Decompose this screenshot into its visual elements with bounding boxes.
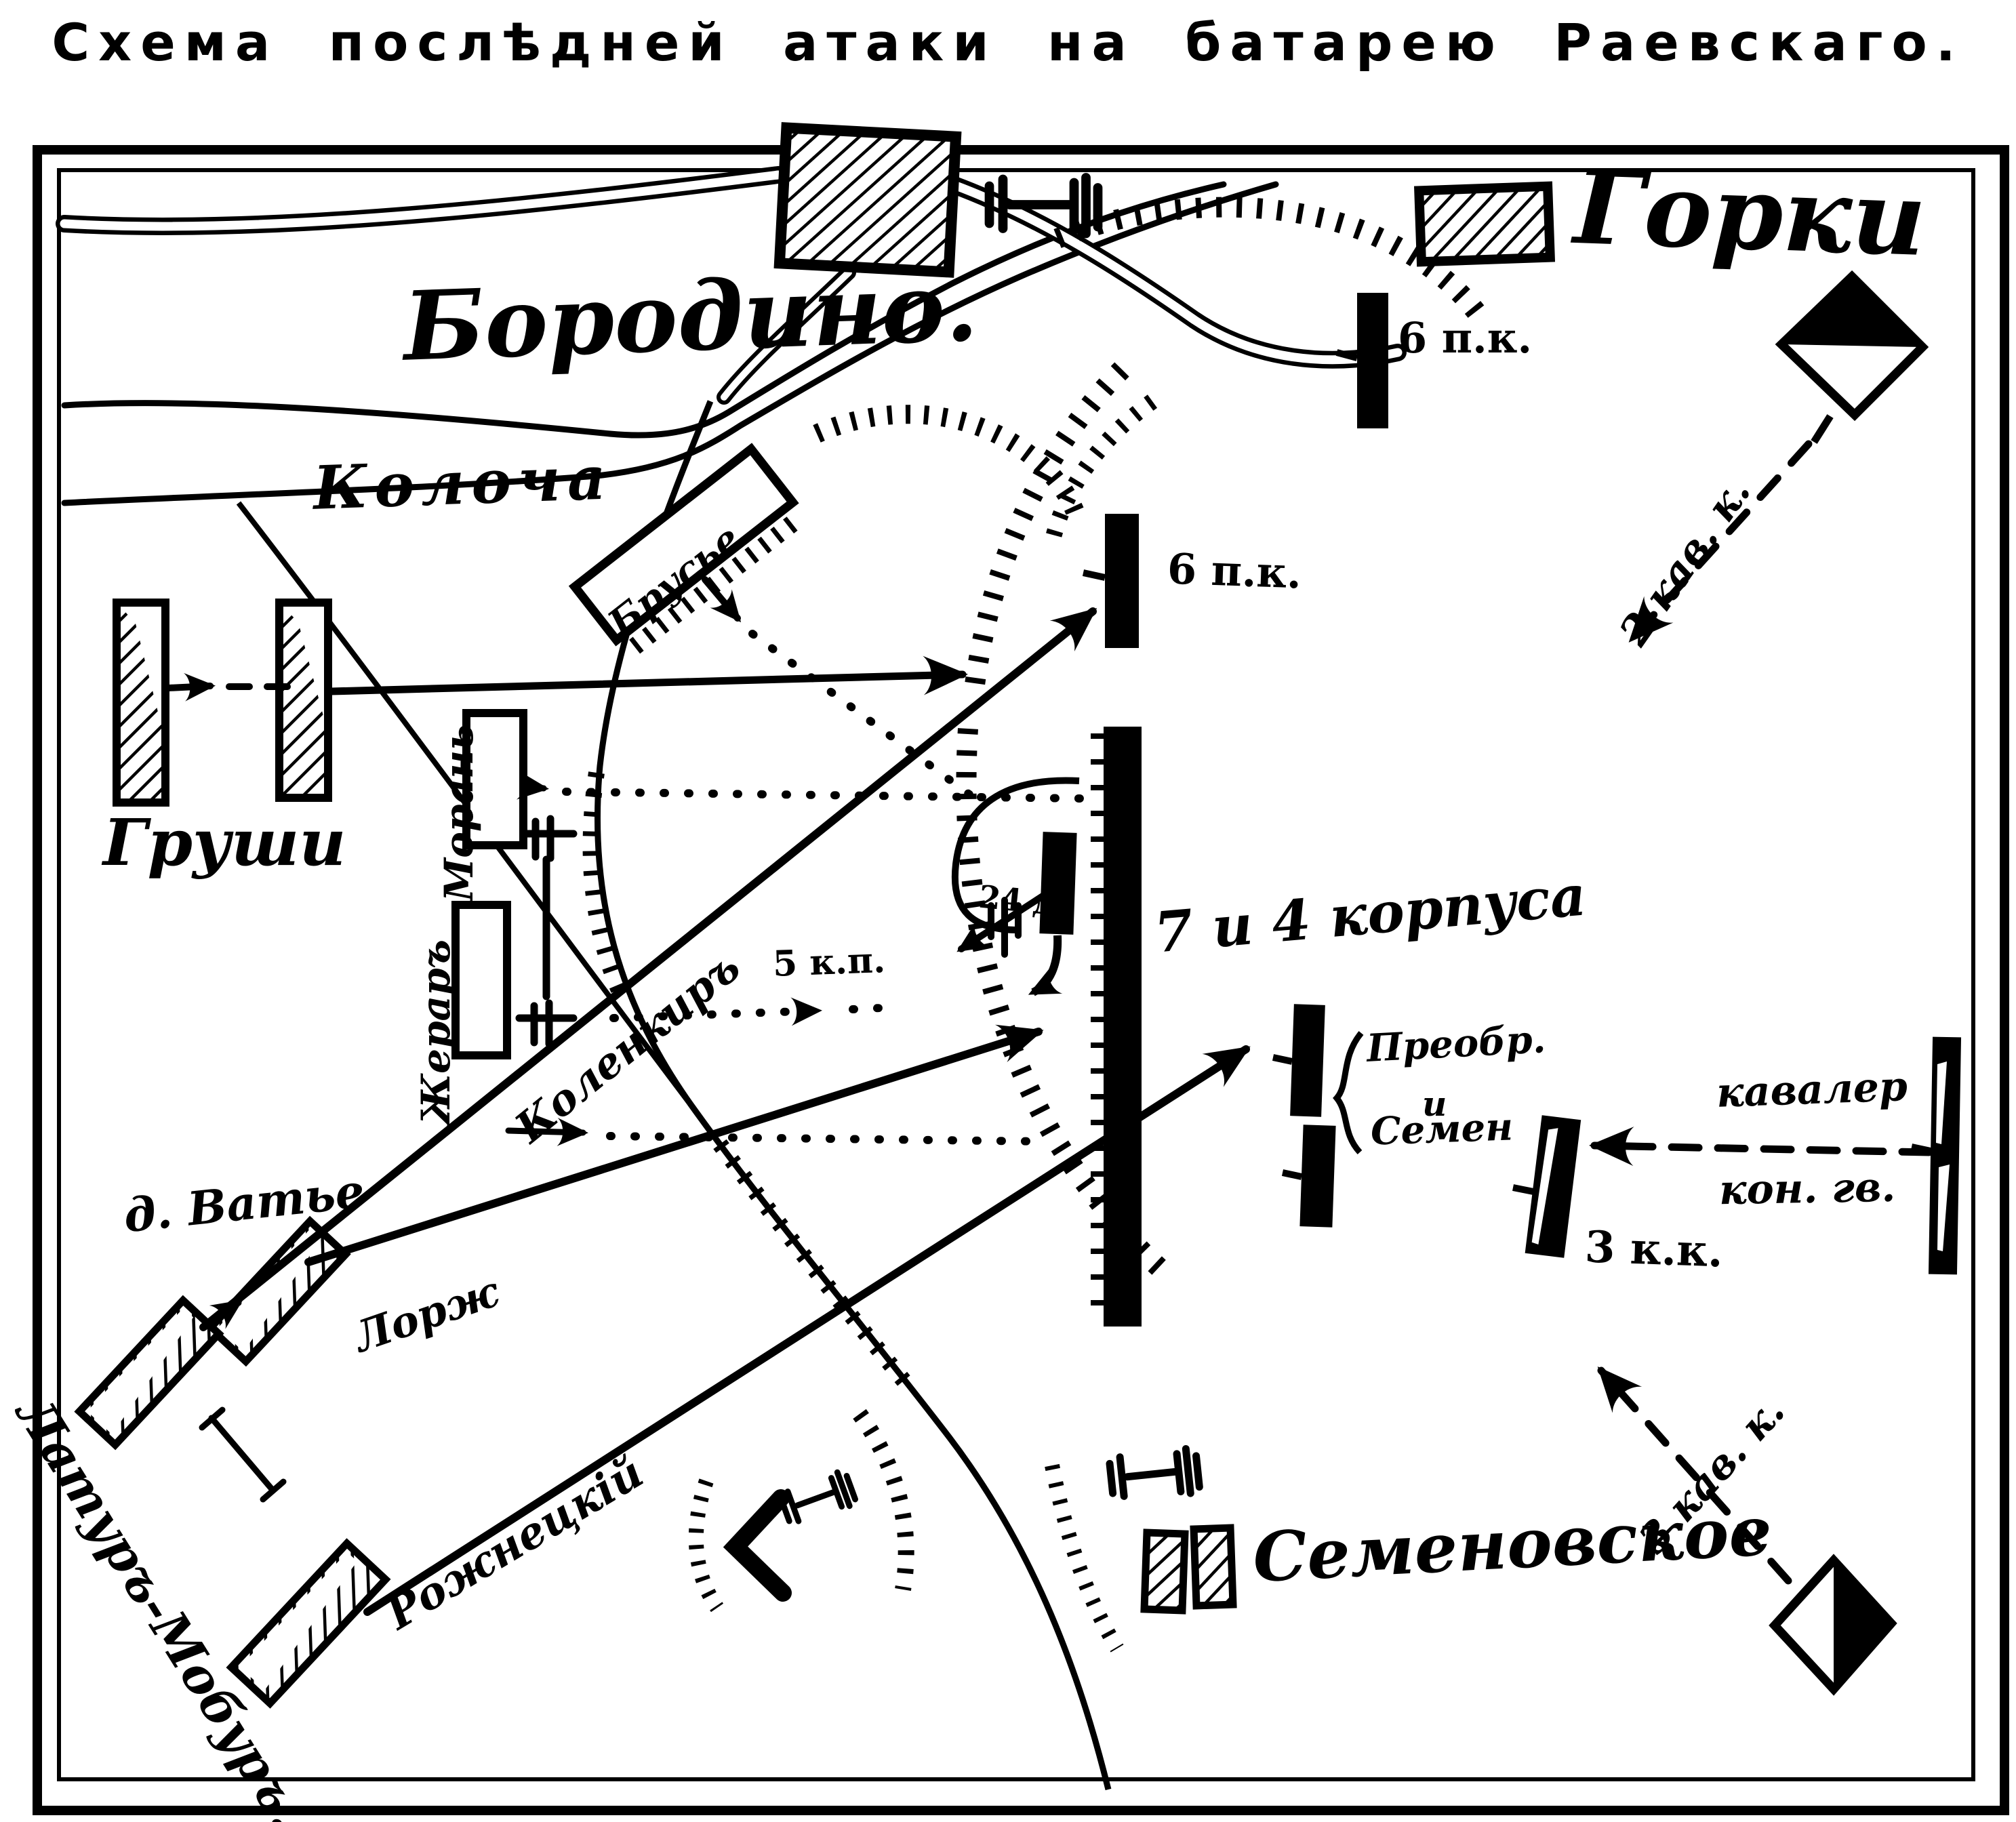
label-6pk-top: 6 п.к. <box>1398 317 1532 359</box>
label-5kp: 5 к.п. <box>772 943 886 982</box>
cavalry-diamond-2kav <box>1781 277 1922 442</box>
guard-bar-preobr <box>1273 1004 1325 1117</box>
cannon-icon-semenovskoe <box>1109 1448 1200 1501</box>
borodino-village-icon <box>780 128 956 272</box>
dots-broussier <box>752 634 969 794</box>
battery-icon-morand <box>519 819 573 1044</box>
arrow-grushi-short <box>168 686 210 688</box>
cannon-icon-fleche <box>780 1470 857 1527</box>
arrow-kongv <box>1594 1146 1929 1152</box>
label-24div: 24 д. <box>977 881 1066 921</box>
fleche-chevron-icon <box>735 1498 783 1593</box>
gorki-village-icon <box>1419 186 1550 262</box>
label-semen: Семен <box>1370 1108 1514 1150</box>
cavalry-unit-latour-2 <box>231 1543 386 1703</box>
arrow-morand-stub <box>525 786 544 788</box>
dots-gerard <box>610 1136 1044 1141</box>
label-borodino: Бородино. <box>402 260 980 374</box>
label-grushi: Груши <box>103 811 346 875</box>
infantry-unit-gerard <box>456 905 507 1055</box>
cavalry-bar-3kk <box>1506 1113 1581 1258</box>
label-3kk: 3 к.к. <box>1584 1226 1724 1274</box>
infantry-bar-6pk-mid <box>1083 514 1139 648</box>
label-kon-gv: кон. гв. <box>1718 1167 1895 1211</box>
arrow-grushi-long <box>331 674 963 691</box>
guard-brace <box>1337 1033 1361 1152</box>
cavalry-diamond-3kav <box>1775 1560 1891 1689</box>
latour-connector <box>202 1410 283 1499</box>
raevsky-battery-bar <box>1100 727 1142 1327</box>
arrow-broussier <box>705 580 738 618</box>
cavalry-unit-vatie <box>210 1221 346 1361</box>
map-page: Схема послѣдней атаки на батарею Раевска… <box>0 0 2016 1822</box>
label-kolocha: Колоча <box>313 447 614 517</box>
cavalry-unit-grushi-2 <box>279 603 328 798</box>
label-gerard: Жераръ <box>416 939 456 1125</box>
label-gorki: Горки <box>1573 157 1928 270</box>
label-6pk-mid: 6 п.к. <box>1167 548 1302 595</box>
cavalry-unit-grushi-1 <box>117 603 165 803</box>
cavalry-unit-latour-1 <box>79 1301 218 1445</box>
label-preobr: Преобр. <box>1366 1020 1547 1068</box>
semenovskoe-village-icon <box>1144 1528 1233 1611</box>
dots-5kp-tail <box>853 1008 881 1009</box>
guard-bar-semen <box>1283 1125 1336 1228</box>
label-kavaler: кавалер <box>1716 1066 1908 1114</box>
label-morand: Морань <box>439 724 479 902</box>
